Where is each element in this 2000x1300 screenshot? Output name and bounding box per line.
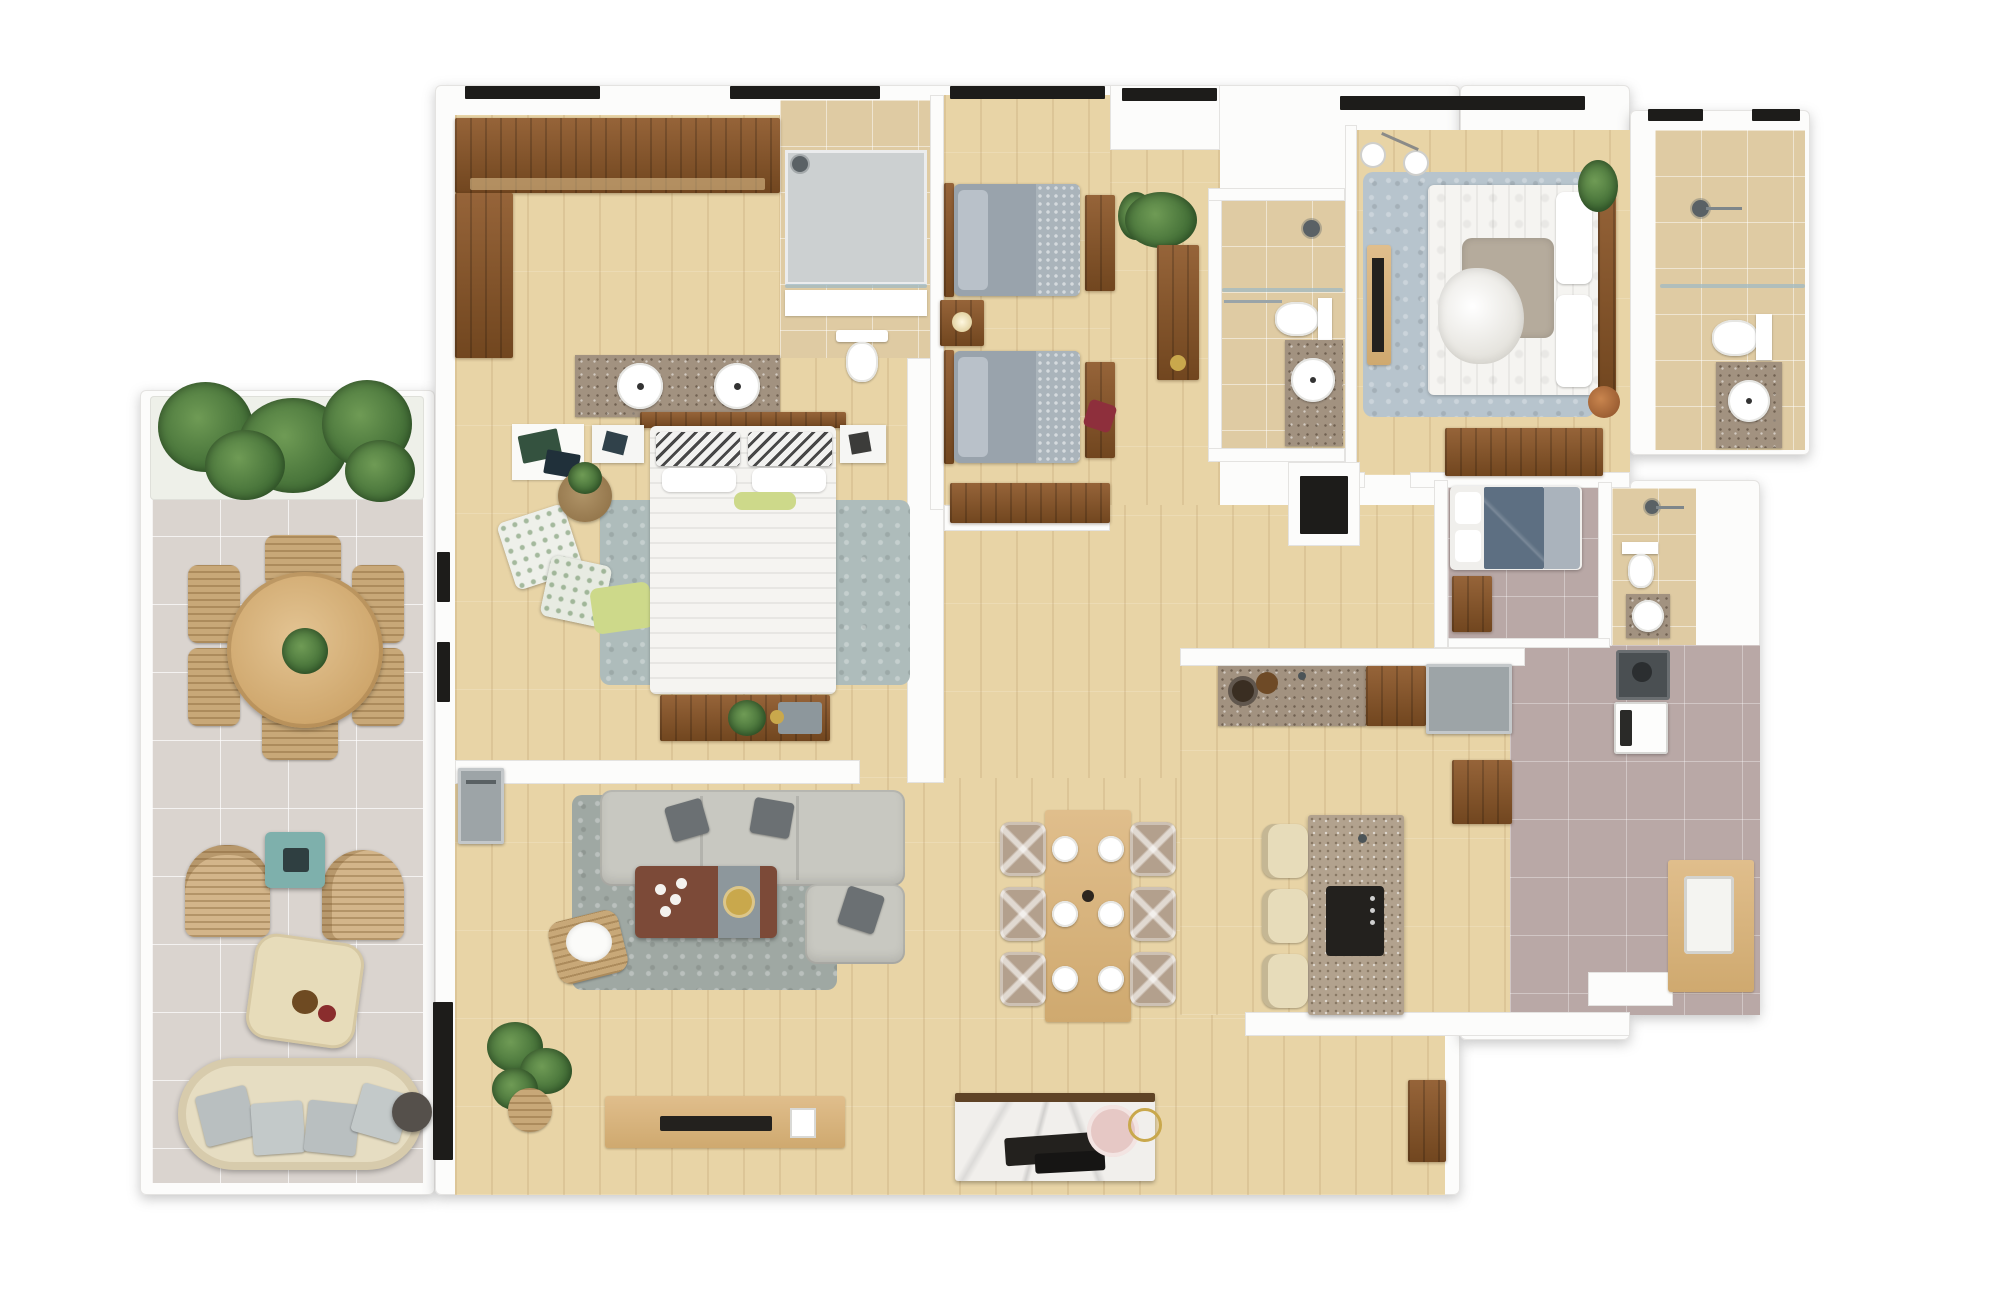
maid-nightstand bbox=[1452, 576, 1492, 632]
ceiling-light-icon bbox=[1362, 144, 1384, 166]
pouf-spot-icon bbox=[292, 990, 318, 1014]
service-step bbox=[1588, 972, 1673, 1006]
wall-bathroom2-left bbox=[1208, 188, 1222, 462]
kitchen-bowl-icon bbox=[1228, 676, 1258, 706]
table-centerpiece-plant-icon bbox=[282, 628, 328, 674]
kitchen-bowl-icon bbox=[1256, 672, 1278, 694]
balcony-round-side-table bbox=[392, 1092, 432, 1132]
bath3-toilet-tank bbox=[1756, 314, 1772, 360]
closet-shelf-edge bbox=[470, 178, 765, 190]
bath2-towel-bar bbox=[1224, 300, 1282, 303]
faucet-dot-icon bbox=[637, 383, 644, 390]
wall-corridor-maid bbox=[1434, 480, 1448, 648]
cup-icon bbox=[655, 884, 666, 895]
wall-bathroom2-top bbox=[1208, 188, 1345, 201]
masterbath-window bbox=[730, 86, 880, 99]
buffet-tray-icon bbox=[1035, 1150, 1106, 1174]
twin-bedroom-window bbox=[950, 86, 1105, 99]
nightstand-deco-icon bbox=[848, 431, 871, 454]
entry-door bbox=[1122, 88, 1217, 101]
wall-bathroom2-bottom bbox=[1208, 448, 1345, 462]
white-pillow bbox=[662, 468, 736, 492]
green-accent-pillow bbox=[734, 492, 796, 510]
bath2-toilet bbox=[1275, 302, 1319, 336]
chevron-pillow bbox=[748, 432, 832, 466]
master-shower-tray bbox=[785, 150, 927, 285]
sofa-seat-line bbox=[796, 796, 799, 880]
basket-blanket-icon bbox=[566, 922, 612, 962]
master-bath-ledge bbox=[785, 290, 927, 316]
sofa-cushion bbox=[250, 1100, 306, 1156]
bath4-sink-icon bbox=[1632, 600, 1664, 632]
floor-throw bbox=[589, 581, 655, 635]
place-setting-icon bbox=[1052, 966, 1078, 992]
nightstand-lamp-icon bbox=[952, 312, 972, 332]
place-setting-icon bbox=[1098, 901, 1124, 927]
bath3-toilet bbox=[1712, 320, 1758, 356]
duct-shaft bbox=[1300, 476, 1348, 534]
ceiling-light-icon bbox=[1405, 152, 1427, 174]
kitchen-appliance bbox=[1426, 664, 1512, 734]
dining-chair bbox=[1000, 822, 1046, 876]
master-balcony-window-a bbox=[437, 552, 450, 602]
bedroom3-wardrobe bbox=[1445, 428, 1603, 476]
gold-tray-icon bbox=[723, 886, 755, 918]
hall-plant-icon bbox=[1125, 192, 1197, 248]
bath4-toilet bbox=[1628, 554, 1654, 588]
master-toilet bbox=[846, 342, 878, 382]
dining-chair bbox=[1000, 887, 1046, 941]
faucet-dot-icon bbox=[1310, 377, 1316, 383]
bench-dot-icon bbox=[770, 710, 784, 724]
shower-head-icon bbox=[1303, 220, 1320, 237]
bench-plant-icon bbox=[728, 700, 766, 736]
corridor-cabinet bbox=[1452, 760, 1512, 824]
floor-plan-render bbox=[0, 0, 2000, 1300]
twin-bed-headboard bbox=[944, 183, 954, 297]
dining-chair bbox=[1130, 822, 1176, 876]
place-setting-icon bbox=[1052, 836, 1078, 862]
bathroom3-window-a bbox=[1648, 109, 1703, 121]
sofa-throw-pillow bbox=[749, 797, 795, 839]
master-balcony-window-b bbox=[437, 642, 450, 702]
bathroom3-window-b bbox=[1752, 109, 1800, 121]
twin-bed-blanket bbox=[1036, 351, 1080, 463]
cup-icon bbox=[670, 894, 681, 905]
twin-bed-blanket bbox=[1036, 184, 1080, 296]
cooktop-burner-icon bbox=[1370, 896, 1375, 901]
wall-maid-bath4 bbox=[1598, 482, 1612, 646]
cup-icon bbox=[676, 878, 687, 889]
twin-foot-bench bbox=[1085, 195, 1115, 291]
laundry-basin-icon bbox=[1684, 876, 1734, 954]
bath3-shower-glass bbox=[1660, 284, 1805, 288]
chevron-pillow bbox=[656, 432, 740, 466]
bath2-shower-glass bbox=[1222, 288, 1343, 292]
shower-head-icon bbox=[792, 156, 808, 172]
bedroom3-pillow bbox=[1556, 295, 1592, 387]
master-toilet-tank bbox=[836, 330, 888, 342]
shower-arm-icon bbox=[1706, 207, 1742, 210]
maid-bed-foot bbox=[1544, 487, 1580, 569]
crumpled-blanket-icon bbox=[1438, 268, 1524, 364]
washer-door-icon bbox=[1620, 710, 1632, 746]
master-bed bbox=[650, 426, 836, 694]
wall-bedroom3-left bbox=[1345, 125, 1357, 480]
bench-tray-icon bbox=[778, 702, 822, 734]
hall-console-knob-icon bbox=[1170, 355, 1186, 371]
dining-chair bbox=[1130, 952, 1176, 1006]
maid-bed-pillow bbox=[1455, 492, 1481, 524]
pouf-spot-icon bbox=[318, 1005, 336, 1022]
bar-stool bbox=[1262, 889, 1308, 943]
living-plant-pot bbox=[508, 1088, 552, 1132]
appliance-dial-icon bbox=[1632, 662, 1652, 682]
faucet-dot-icon bbox=[734, 383, 741, 390]
dining-corner-cabinet bbox=[1408, 1080, 1446, 1162]
closet-window bbox=[465, 86, 600, 99]
wall-master-living bbox=[455, 760, 860, 784]
media-box-icon bbox=[790, 1108, 816, 1138]
basket-plant-icon bbox=[568, 462, 602, 494]
place-setting-icon bbox=[1098, 966, 1124, 992]
table-vase-icon bbox=[1082, 890, 1094, 902]
twin-bed-headboard bbox=[944, 350, 954, 464]
copper-pot-icon bbox=[1588, 386, 1620, 418]
balcony-armchair bbox=[322, 850, 404, 940]
white-pillow bbox=[752, 468, 826, 492]
twin-bed-pillow bbox=[958, 190, 988, 290]
wall-service-top bbox=[1448, 638, 1610, 648]
bar-stool bbox=[1262, 824, 1308, 878]
tv-icon bbox=[1372, 258, 1384, 352]
twin-low-console bbox=[950, 483, 1110, 523]
tv-icon bbox=[660, 1116, 772, 1131]
cooktop-burner-icon bbox=[1370, 920, 1375, 925]
bedroom3-plant-icon bbox=[1578, 160, 1618, 212]
buffet-wood-edge bbox=[955, 1093, 1155, 1102]
planter-plant-icon bbox=[205, 430, 285, 500]
bar-stool bbox=[1262, 954, 1308, 1008]
wall-kitchen-bottom bbox=[1245, 1012, 1630, 1036]
maid-bed-pillow bbox=[1455, 530, 1481, 562]
dining-chair bbox=[1000, 952, 1046, 1006]
gold-basket-icon bbox=[1128, 1108, 1162, 1142]
maid-bed-blanket bbox=[1484, 487, 1544, 569]
balcony-sliding-door bbox=[433, 1002, 453, 1160]
bedroom3-headboard bbox=[1598, 180, 1616, 400]
place-setting-icon bbox=[1052, 901, 1078, 927]
bath2-toilet-tank bbox=[1318, 298, 1332, 340]
bedroom3-window bbox=[1340, 96, 1585, 110]
twin-bed-pillow bbox=[958, 357, 988, 457]
bath4-toilet-tank bbox=[1622, 542, 1658, 554]
place-setting-icon bbox=[1098, 836, 1124, 862]
cooktop-burner-icon bbox=[1370, 908, 1375, 913]
cup-icon bbox=[660, 906, 671, 917]
shower-glass bbox=[785, 284, 927, 288]
side-table-tray-icon bbox=[283, 848, 309, 872]
planter-plant-icon bbox=[345, 440, 415, 502]
cabinet-handle-icon bbox=[466, 780, 496, 784]
balcony-armchair bbox=[185, 845, 270, 937]
dining-chair bbox=[1130, 887, 1176, 941]
kitchen-faucet-icon bbox=[1298, 672, 1306, 680]
island-faucet-icon bbox=[1358, 834, 1367, 843]
shower-arm-icon bbox=[1656, 506, 1684, 509]
kitchen-cabinet bbox=[1366, 666, 1426, 726]
island-cooktop bbox=[1326, 886, 1384, 956]
closet-wardrobe-left bbox=[455, 193, 513, 358]
faucet-dot-icon bbox=[1746, 398, 1752, 404]
